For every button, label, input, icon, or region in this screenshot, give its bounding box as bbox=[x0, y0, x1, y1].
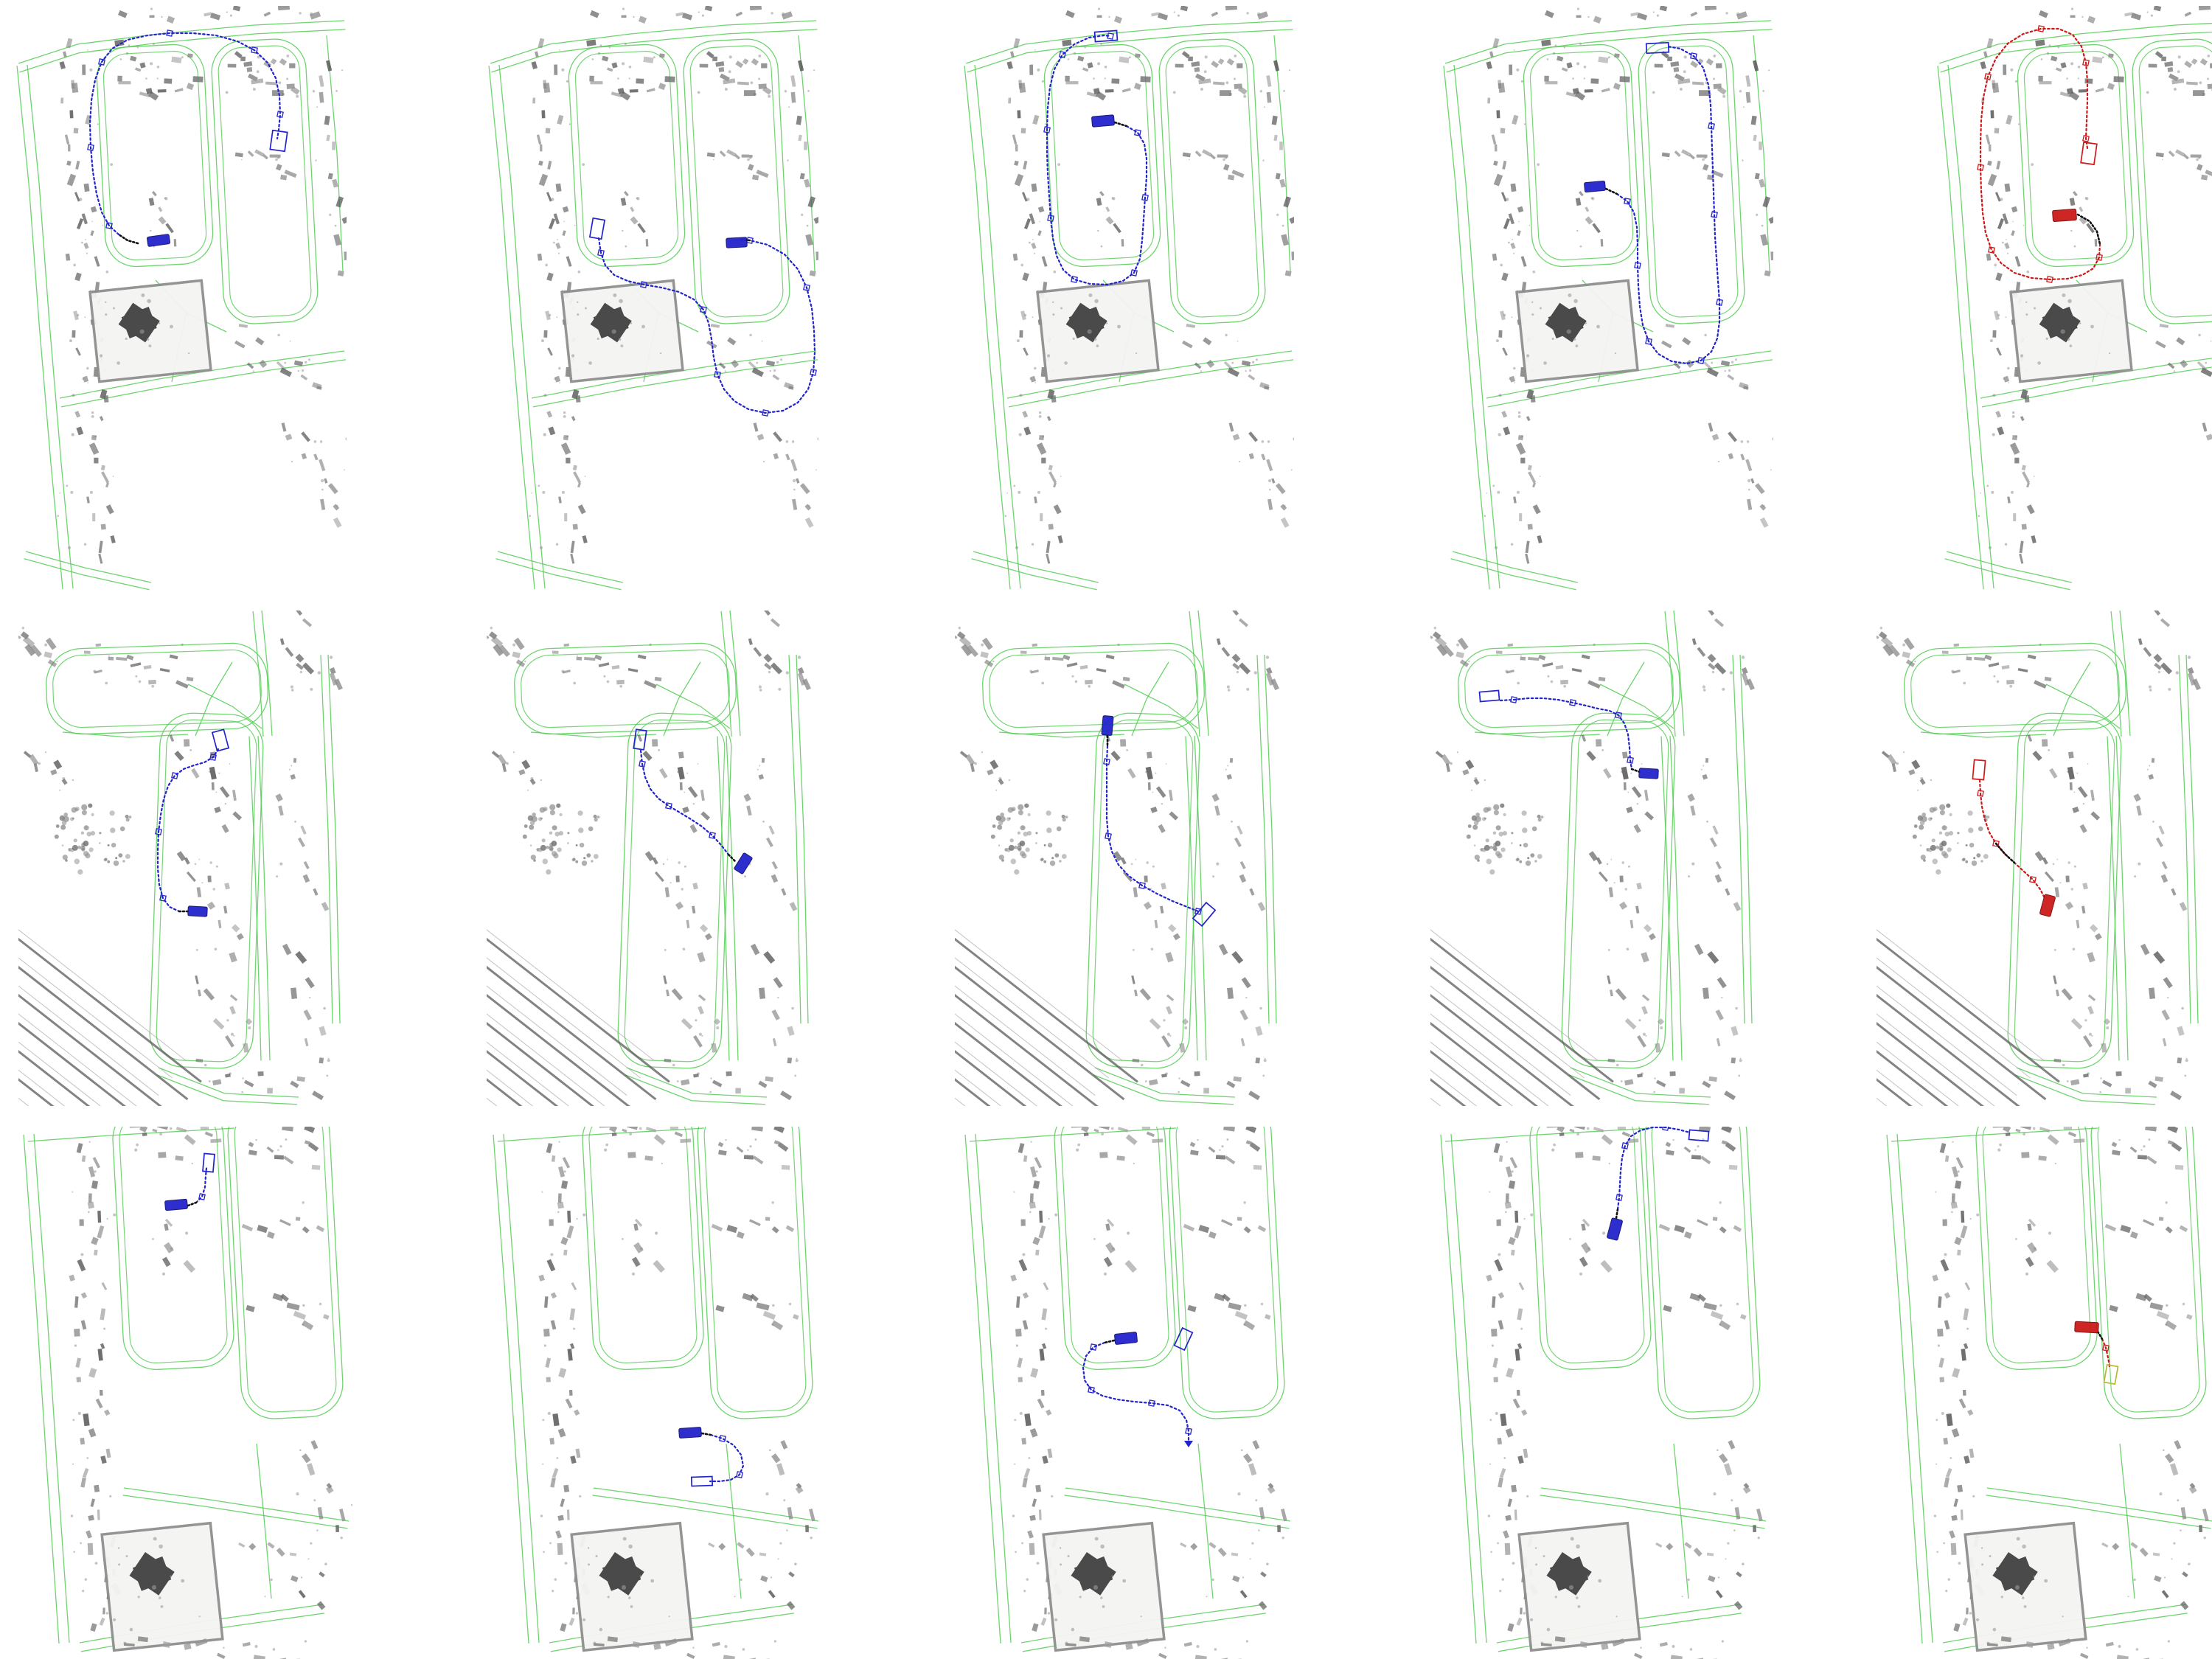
map-background bbox=[489, 6, 818, 590]
goal-box bbox=[1175, 1328, 1193, 1350]
map-panel-r3c1 bbox=[13, 1127, 352, 1659]
history-path bbox=[1115, 122, 1127, 126]
map-panel-r1c3 bbox=[959, 6, 1294, 599]
trajectory bbox=[164, 1153, 215, 1210]
vehicle-box bbox=[1639, 768, 1659, 779]
goal-box bbox=[1972, 759, 1985, 779]
trajectory bbox=[679, 1427, 743, 1486]
vehicle-box bbox=[679, 1427, 702, 1438]
goal-box bbox=[590, 218, 605, 239]
vehicle-box bbox=[1114, 1332, 1137, 1344]
vehicle-box bbox=[2075, 1321, 2099, 1333]
map-panel-r2c2 bbox=[487, 611, 811, 1106]
history-path bbox=[1616, 1209, 1618, 1218]
map-panel-r1c1 bbox=[11, 6, 347, 599]
path-marker-icon bbox=[666, 803, 672, 809]
map-background bbox=[1938, 6, 2212, 590]
trajectory bbox=[1083, 1328, 1193, 1447]
goal-box bbox=[212, 729, 229, 751]
vehicle-box bbox=[164, 1199, 187, 1211]
vehicle-box bbox=[726, 237, 748, 248]
path-marker-icon bbox=[709, 832, 715, 838]
vehicle-box bbox=[1102, 715, 1113, 735]
trajectory bbox=[1972, 759, 2055, 917]
map-panel-r1c5 bbox=[1932, 6, 2212, 599]
trajectory bbox=[2075, 1321, 2118, 1384]
predicted-path bbox=[710, 1435, 743, 1481]
predicted-path bbox=[1107, 746, 1198, 911]
map-background bbox=[1441, 1127, 1766, 1659]
map-panel-r2c4 bbox=[1430, 611, 1755, 1106]
trajectory bbox=[88, 30, 288, 247]
map-panel-r2c3 bbox=[955, 611, 1279, 1106]
map-background bbox=[955, 611, 1279, 1106]
history-path bbox=[1632, 769, 1640, 772]
map-background bbox=[24, 1127, 352, 1659]
map-panel-r3c2 bbox=[483, 1127, 818, 1659]
predicted-path bbox=[641, 751, 728, 855]
trajectory bbox=[1978, 26, 2102, 282]
map-background bbox=[964, 6, 1294, 590]
arrow-head-icon bbox=[1184, 1441, 1193, 1447]
map-panel-r3c4 bbox=[1430, 1127, 1766, 1659]
vehicle-box bbox=[1091, 115, 1114, 128]
goal-box bbox=[1688, 1130, 1708, 1141]
vehicle-box bbox=[1584, 181, 1605, 192]
history-path bbox=[702, 1433, 711, 1435]
trajectory bbox=[1607, 1127, 1708, 1240]
trajectory bbox=[633, 729, 753, 874]
map-panel-r2c1 bbox=[18, 611, 343, 1106]
history-path bbox=[188, 1203, 196, 1206]
predicted-path bbox=[158, 749, 218, 911]
map-background bbox=[487, 611, 811, 1106]
map-background bbox=[1887, 1127, 2212, 1659]
history-path bbox=[119, 234, 138, 243]
goal-box bbox=[2081, 142, 2097, 164]
trajectory bbox=[1044, 30, 1148, 285]
map-background bbox=[1430, 611, 1755, 1106]
goal-box bbox=[203, 1153, 215, 1172]
map-panel-r3c5 bbox=[1877, 1127, 2212, 1659]
path-marker-icon bbox=[1060, 52, 1065, 58]
path-marker-icon bbox=[2030, 877, 2036, 883]
map-background bbox=[493, 1127, 818, 1659]
map-background bbox=[17, 6, 347, 590]
goal-box bbox=[1479, 690, 1499, 701]
map-background bbox=[18, 611, 343, 1106]
history-path bbox=[1606, 189, 1617, 194]
history-path bbox=[1105, 1340, 1114, 1343]
vehicle-box bbox=[188, 906, 208, 917]
vehicle-box bbox=[147, 234, 170, 246]
map-background bbox=[1444, 6, 1773, 590]
map-panel-r2c5 bbox=[1877, 611, 2212, 1106]
map-panel-r1c4 bbox=[1438, 6, 1773, 599]
map-background bbox=[965, 1127, 1290, 1659]
vehicle-box bbox=[2053, 209, 2077, 221]
map-panel-r3c3 bbox=[955, 1127, 1290, 1659]
vehicle-box bbox=[2039, 894, 2056, 917]
vehicle-box bbox=[1607, 1218, 1623, 1241]
trajectory-panel-grid bbox=[0, 0, 2212, 1659]
predicted-path bbox=[1083, 1343, 1189, 1441]
map-panel-r1c2 bbox=[483, 6, 818, 599]
map-background bbox=[1877, 611, 2201, 1106]
goal-box bbox=[1193, 902, 1215, 926]
